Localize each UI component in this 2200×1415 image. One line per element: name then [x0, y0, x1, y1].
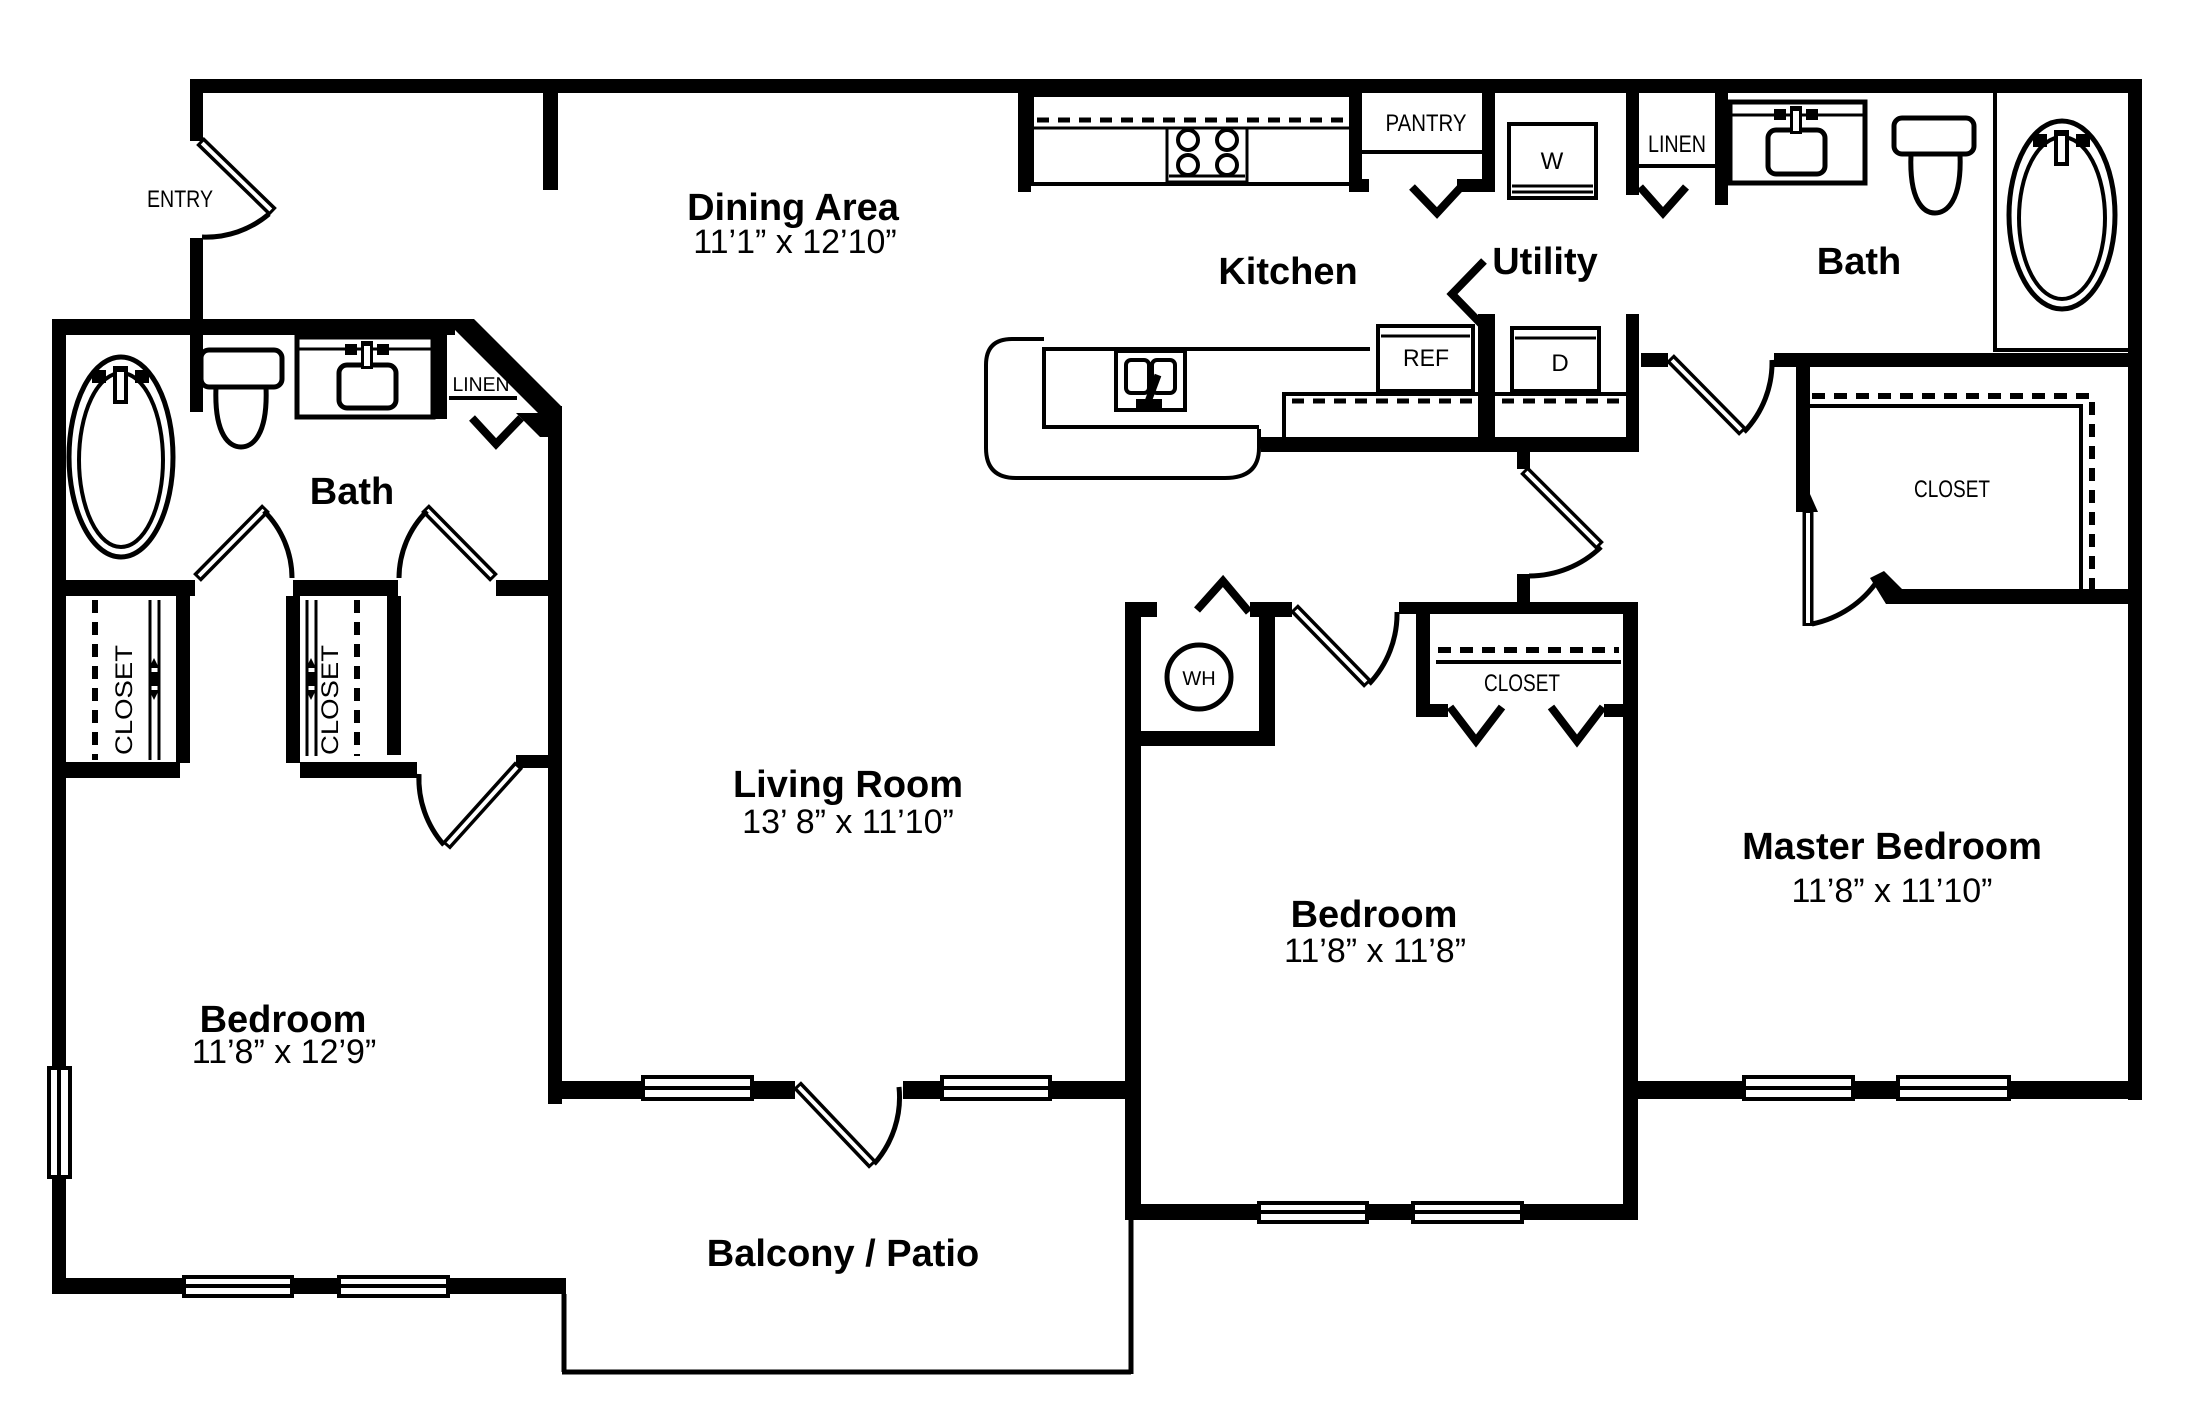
svg-text:CLOSET: CLOSET — [111, 645, 138, 755]
svg-text:D: D — [1551, 350, 1568, 377]
svg-text:Bedroom: Bedroom — [1291, 894, 1458, 936]
svg-text:LINEN: LINEN — [1648, 131, 1706, 158]
svg-text:Master Bedroom: Master Bedroom — [1742, 826, 2042, 868]
svg-text:CLOSET: CLOSET — [317, 645, 344, 755]
svg-text:WH: WH — [1182, 668, 1215, 690]
svg-text:Living Room: Living Room — [733, 764, 963, 806]
svg-text:W: W — [1541, 148, 1564, 175]
svg-text:Balcony / Patio: Balcony / Patio — [707, 1233, 979, 1275]
svg-text:ENTRY: ENTRY — [147, 186, 213, 213]
svg-text:CLOSET: CLOSET — [1914, 476, 1990, 503]
svg-text:11’8” x 12’9”: 11’8” x 12’9” — [192, 1033, 377, 1071]
svg-text:PANTRY: PANTRY — [1386, 110, 1467, 137]
svg-text:LINEN: LINEN — [453, 374, 510, 396]
svg-text:Kitchen: Kitchen — [1218, 251, 1357, 293]
svg-text:Bath: Bath — [310, 471, 394, 513]
svg-text:CLOSET: CLOSET — [1484, 670, 1560, 697]
svg-text:REF: REF — [1403, 345, 1449, 372]
svg-text:Bath: Bath — [1817, 241, 1901, 283]
svg-text:Utility: Utility — [1492, 241, 1598, 283]
svg-text:11’1” x 12’10”: 11’1” x 12’10” — [693, 223, 897, 261]
svg-text:11’8” x 11’10”: 11’8” x 11’10” — [1792, 872, 1993, 910]
svg-text:11’8” x 11’8”: 11’8” x 11’8” — [1284, 932, 1466, 970]
svg-text:13’ 8” x 11’10”: 13’ 8” x 11’10” — [742, 803, 954, 841]
